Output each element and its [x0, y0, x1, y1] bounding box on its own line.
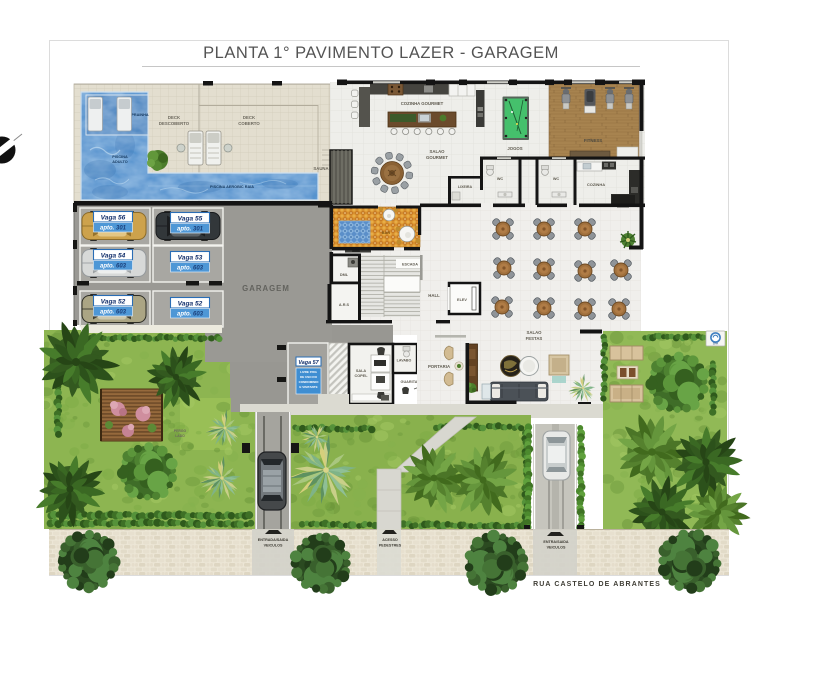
svg-text:PLANTA 1° PAVIMENTO LAZER - GA: PLANTA 1° PAVIMENTO LAZER - GARAGEM [203, 44, 559, 62]
svg-text:SAUNA: SAUNA [313, 166, 328, 171]
svg-text:E VISITANTE: E VISITANTE [299, 385, 317, 389]
svg-text:apto. 301: apto. 301 [100, 226, 127, 232]
svg-text:VEICULOS: VEICULOS [264, 544, 283, 548]
svg-text:PISCINA: PISCINA [112, 155, 128, 159]
svg-text:FESTAS: FESTAS [526, 336, 543, 341]
svg-text:VEICULOS: VEICULOS [547, 546, 566, 550]
svg-text:SALAO: SALAO [526, 330, 542, 335]
svg-text:SPA: SPA [713, 342, 719, 346]
svg-text:apto. 603: apto. 603 [177, 266, 204, 272]
svg-text:COBERTO: COBERTO [238, 121, 260, 126]
svg-text:FITNESS: FITNESS [584, 138, 602, 143]
svg-text:Vaga 56: Vaga 56 [101, 215, 126, 222]
svg-text:apto. 603: apto. 603 [100, 310, 127, 316]
svg-text:GOURMET: GOURMET [426, 155, 448, 160]
svg-text:Vaga 57: Vaga 57 [298, 360, 319, 366]
svg-text:GARAGEM: GARAGEM [242, 284, 290, 293]
svg-text:RUA CASTELO DE ABRANTES: RUA CASTELO DE ABRANTES [533, 581, 661, 588]
svg-text:WC: WC [553, 177, 560, 181]
svg-text:JOGOS: JOGOS [507, 146, 522, 151]
svg-text:PORTARIA: PORTARIA [428, 364, 450, 369]
svg-text:ESCADA: ESCADA [402, 263, 418, 267]
svg-text:PEDESTRES: PEDESTRES [379, 544, 402, 548]
svg-text:COZINHA: COZINHA [587, 182, 605, 187]
svg-text:DESCOBERTO: DESCOBERTO [159, 121, 190, 126]
svg-text:COZINHA GOURMET: COZINHA GOURMET [401, 101, 444, 106]
svg-text:HALL: HALL [428, 293, 440, 298]
svg-text:ENTRADA/SAIDA: ENTRADA/SAIDA [258, 538, 289, 542]
svg-text:ENTRA/SAIDA: ENTRA/SAIDA [543, 540, 569, 544]
svg-text:DECK: DECK [243, 115, 256, 120]
svg-text:Vaga 54: Vaga 54 [101, 253, 126, 260]
svg-text:PRAINHA: PRAINHA [131, 113, 149, 117]
svg-text:ADULTO: ADULTO [112, 160, 128, 164]
svg-text:CONDOMINIO: CONDOMINIO [299, 380, 319, 384]
svg-text:SALA: SALA [356, 369, 367, 373]
svg-text:Vaga 52: Vaga 52 [101, 299, 126, 306]
svg-text:ACESSO: ACESSO [382, 538, 398, 542]
svg-text:DML: DML [340, 273, 349, 277]
svg-text:BAR: BAR [382, 230, 391, 235]
svg-text:PERGO: PERGO [174, 429, 187, 433]
svg-text:DE USO DO: DE USO DO [300, 375, 318, 379]
svg-text:apto. 301: apto. 301 [177, 227, 204, 233]
svg-text:apto. 603: apto. 603 [100, 264, 127, 270]
svg-text:LIVRE P/RA: LIVRE P/RA [300, 370, 318, 374]
svg-text:apto. 603: apto. 603 [177, 312, 204, 318]
svg-text:Vaga 55: Vaga 55 [178, 216, 203, 223]
svg-text:LAVABO: LAVABO [397, 359, 412, 363]
svg-text:LADO: LADO [175, 434, 185, 438]
svg-text:PISCINA AEROBIC RAIA: PISCINA AEROBIC RAIA [210, 185, 254, 189]
svg-text:COPEL: COPEL [354, 374, 368, 378]
svg-text:LIXEIRA: LIXEIRA [458, 185, 473, 189]
svg-text:Vaga 53: Vaga 53 [178, 255, 203, 262]
svg-text:Vaga 52: Vaga 52 [178, 301, 203, 308]
svg-text:WC: WC [497, 177, 504, 181]
svg-text:ELEV: ELEV [457, 298, 467, 302]
svg-text:SALAO: SALAO [429, 149, 445, 154]
svg-text:DECK: DECK [168, 115, 181, 120]
svg-text:A.R.S: A.R.S [339, 303, 350, 307]
svg-text:GUARITA: GUARITA [400, 380, 417, 384]
